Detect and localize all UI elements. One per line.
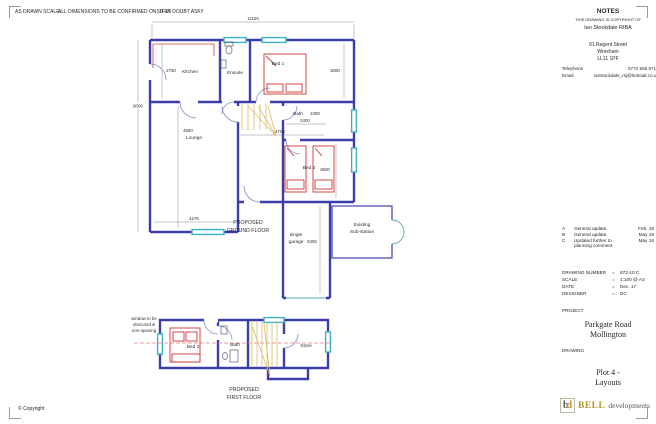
- revision-id: C: [562, 238, 572, 248]
- ground-floor-door-openings: [148, 64, 327, 301]
- ground-floor-title-1: PROPOSED: [233, 220, 263, 226]
- revision-desc: General update.: [574, 226, 628, 231]
- dim-bed2: 3600: [320, 167, 330, 172]
- revision-date: May 18: [630, 238, 654, 248]
- window-note-1: window to be: [131, 316, 157, 321]
- revision-row: A General update. Feb. 18: [562, 226, 654, 231]
- room-label-kitchen: Kitchen: [182, 69, 198, 75]
- ground-floor-dimension-lines: [138, 22, 354, 294]
- project-label: PROJECT: [562, 308, 583, 313]
- bell-developments-logo: b d BELL developments: [560, 398, 656, 413]
- ground-floor-stairs: [242, 104, 276, 136]
- architect-name: Ian Stockdale RIBA: [560, 25, 656, 31]
- logo-monogram-icon: b d: [560, 398, 575, 413]
- dim-bath-a: 2400: [310, 111, 320, 116]
- room-label-substation-1: Existing: [354, 222, 371, 228]
- room-label-bath: Bath: [293, 111, 303, 117]
- architect-address-line2: Wrexham: [560, 49, 656, 55]
- room-label-bed2: Bed 2: [303, 165, 316, 171]
- logo-suffix: developments: [608, 401, 650, 410]
- drawing-info-block: DRAWING NUMBER = 872-10 C SCALE = 1:100 …: [562, 270, 654, 298]
- copyright-note: © Copyright: [18, 406, 44, 412]
- scale-row: SCALE = 1:100 @ A3: [562, 277, 654, 282]
- scale-value: 1:100 @ A3: [620, 277, 654, 282]
- designer-value: DC: [620, 291, 654, 296]
- notes-title: NOTES: [560, 8, 656, 15]
- telephone-label: Telephone: [562, 66, 594, 71]
- dim-hall: 4700: [275, 129, 285, 134]
- drawing-number-value: 872-10 C: [620, 270, 654, 275]
- project-name: Parkgate Road Mollington: [560, 320, 656, 340]
- dim-kitchen: 2750: [166, 68, 176, 73]
- revision-row: B General update. May 18: [562, 232, 654, 237]
- dim-overall-width: 11125: [247, 16, 259, 21]
- room-label-ensuite: Ensuite: [227, 70, 243, 76]
- notes-copyright-line: THIS DRAWING IS COPYRIGHT OF: [560, 17, 656, 22]
- drawing-number-label: DRAWING NUMBER: [562, 270, 612, 275]
- revision-id: B: [562, 232, 572, 237]
- telephone-value: 0772 555 5715: [594, 66, 656, 71]
- bed1-furniture: [264, 54, 306, 94]
- drawing-name: Plot 4 - Layouts: [560, 368, 656, 388]
- window-note-3: non-opening: [132, 328, 157, 333]
- dim-lounge-h: 4275: [189, 216, 199, 221]
- disclaimer-scale: AS DRAWN SCALE:: [15, 9, 61, 15]
- email-value: ianstockdale_rsj@hotmail.co.uk: [594, 73, 656, 78]
- drawing-sheet: AS DRAWN SCALE: ALL DIMENSIONS TO BE CON…: [0, 0, 656, 424]
- title-block: NOTES THIS DRAWING IS COPYRIGHT OF Ian S…: [560, 0, 656, 424]
- dim-garage: 5455: [307, 239, 317, 244]
- ensuite-fixtures: [221, 42, 233, 68]
- email-label: Email: [562, 73, 594, 78]
- revision-date: Feb. 18: [630, 226, 654, 231]
- room-label-garage-1: single: [290, 232, 303, 238]
- date-row: DATE = Dec. 17: [562, 284, 654, 289]
- revision-desc: General update.: [574, 232, 628, 237]
- revision-date: May 18: [630, 232, 654, 237]
- dim-overall-height: 9000: [133, 104, 143, 109]
- designer-label: DESIGNER: [562, 291, 612, 296]
- ground-floor-plan: 11125 9000 2750 4550 4275 3600 2400 2400…: [128, 10, 408, 310]
- contact-block: Telephone 0772 555 5715 Email ianstockda…: [562, 66, 654, 78]
- room-label-bath-ff: Bath: [230, 342, 240, 348]
- room-label-garage-2: garage: [289, 239, 304, 245]
- scale-label: SCALE: [562, 277, 612, 282]
- room-label-substation-2: Sub-station: [350, 229, 375, 235]
- revision-row: C Updated further to planning comment. M…: [562, 238, 654, 248]
- architect-address-line1: 61 Regent Street: [560, 42, 656, 48]
- revision-id: A: [562, 226, 572, 231]
- dim-lounge-v: 4550: [183, 128, 193, 133]
- room-label-bed1: Bed 1: [272, 61, 285, 67]
- first-floor-walls: [160, 320, 328, 379]
- architect-address-line3: LL11 1PF: [560, 56, 656, 62]
- revision-table: A General update. Feb. 18 B General upda…: [562, 226, 654, 249]
- date-label: DATE: [562, 284, 612, 289]
- date-value: Dec. 17: [620, 284, 654, 289]
- dim-bed1: 3600: [330, 68, 340, 73]
- drawing-number-row: DRAWING NUMBER = 872-10 C: [562, 270, 654, 275]
- room-label-store: Store: [300, 343, 312, 349]
- drawing-label: DRAWING: [562, 348, 584, 353]
- ground-floor-title-2: GROUND FLOOR: [227, 228, 270, 234]
- first-floor-title-2: FIRST FLOOR: [227, 395, 261, 401]
- first-floor-plan: window to be obscured & non-opening Bed …: [118, 306, 348, 404]
- first-floor-title-1: PROPOSED: [229, 387, 259, 393]
- dim-bath-b: 2400: [300, 118, 310, 123]
- designer-row: DESIGNER = DC: [562, 291, 654, 296]
- room-label-bed3: Bed 3: [187, 344, 200, 350]
- revision-desc: Updated further to planning comment.: [574, 238, 628, 248]
- room-label-lounge: Lounge: [186, 135, 202, 141]
- window-note-2: obscured &: [133, 322, 155, 327]
- logo-name: BELL: [578, 401, 605, 411]
